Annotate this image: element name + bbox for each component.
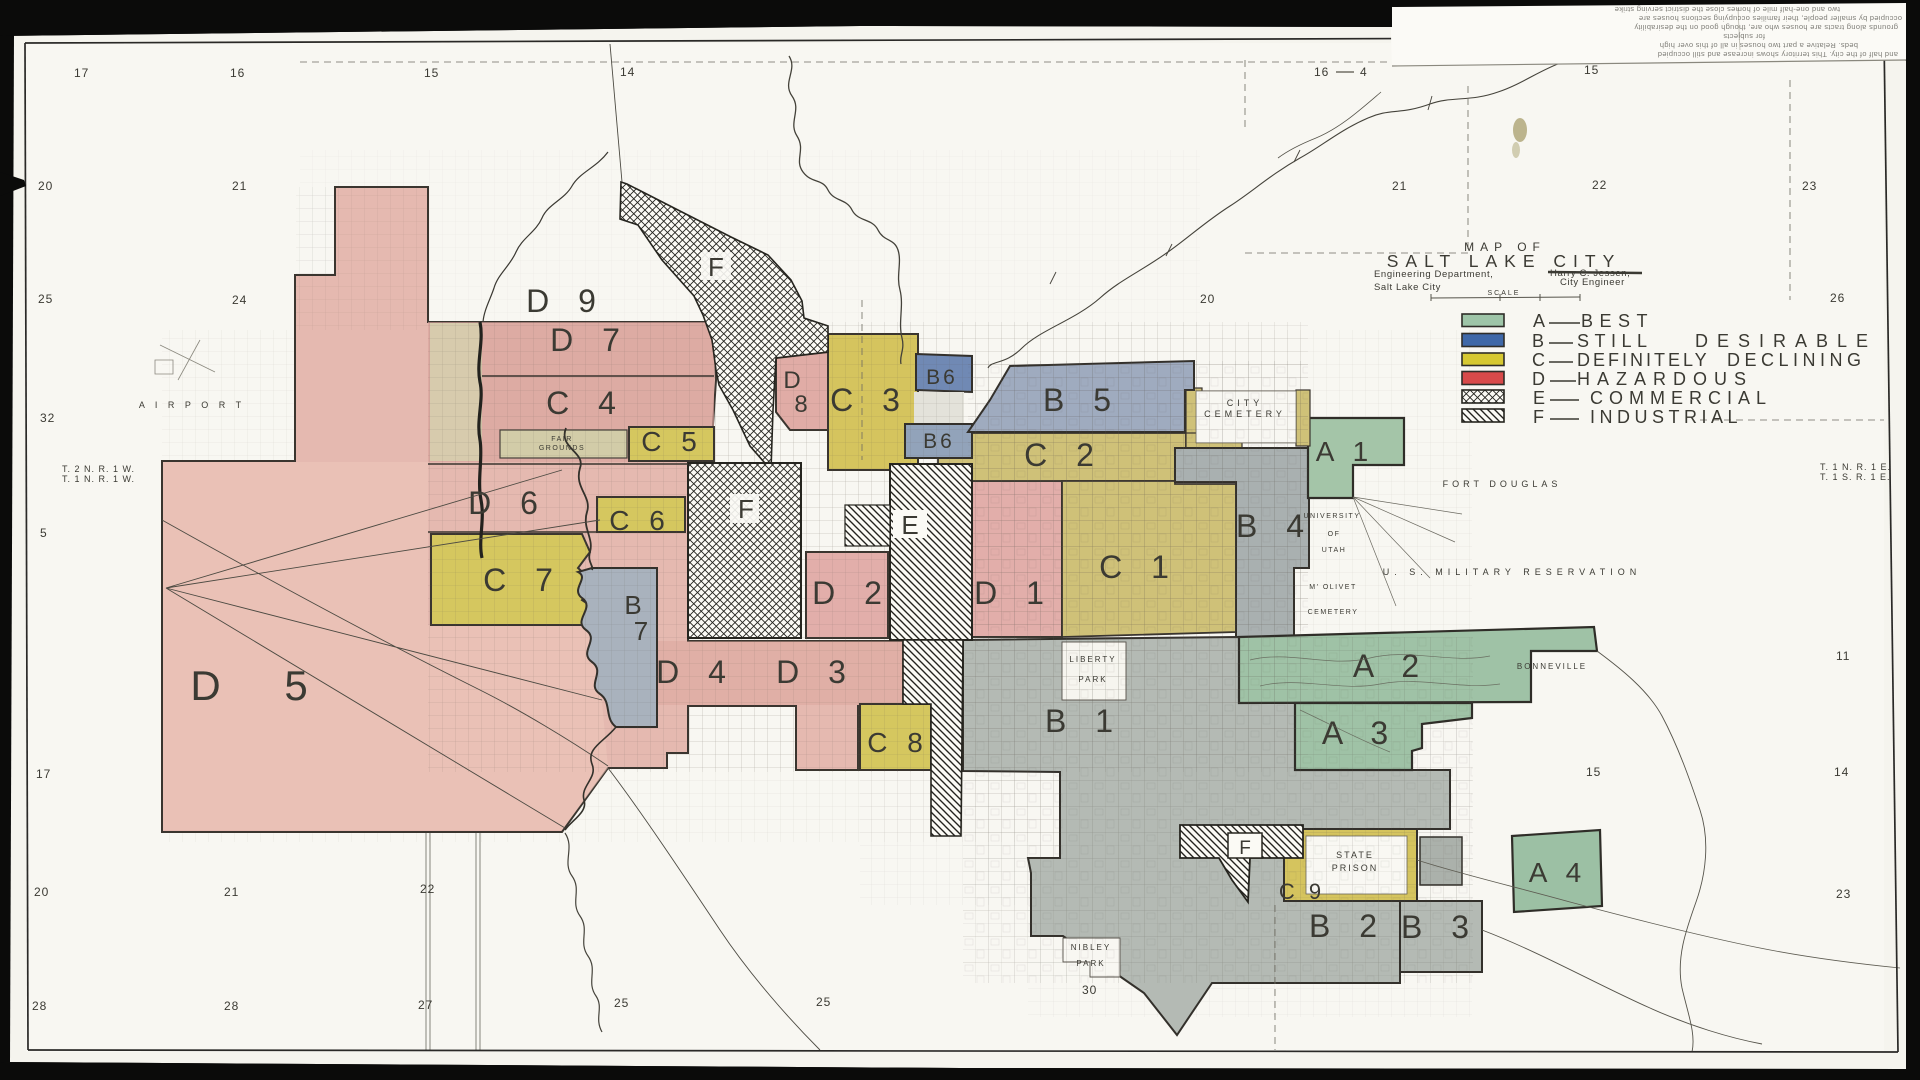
svg-text:30: 30 — [1082, 983, 1097, 997]
svg-text:A I R P O R T: A I R P O R T — [139, 400, 245, 410]
svg-text:D 4: D 4 — [656, 654, 736, 690]
svg-text:FORT DOUGLAS: FORT DOUGLAS — [1443, 479, 1562, 489]
svg-text:FAIR: FAIR — [551, 436, 573, 443]
svg-text:D 5: D 5 — [190, 662, 333, 709]
svg-text:B 1: B 1 — [1045, 703, 1123, 739]
svg-text:A 3: A 3 — [1322, 715, 1398, 751]
svg-text:D 1: D 1 — [974, 575, 1054, 611]
svg-text:27: 27 — [418, 998, 433, 1012]
svg-text:NIBLEY: NIBLEY — [1071, 943, 1111, 952]
svg-text:BONNEVILLE: BONNEVILLE — [1517, 662, 1587, 671]
svg-text:T. 1 N. R. 1 W.: T. 1 N. R. 1 W. — [62, 474, 135, 484]
svg-text:25: 25 — [614, 996, 629, 1010]
svg-text:SCALE: SCALE — [1488, 290, 1521, 297]
svg-text:CITY: CITY — [1227, 398, 1264, 408]
svg-text:24: 24 — [232, 293, 247, 307]
svg-text:14: 14 — [620, 65, 635, 79]
svg-text:26: 26 — [1830, 291, 1845, 305]
svg-text:23: 23 — [1836, 887, 1851, 901]
svg-text:F: F — [708, 252, 724, 282]
svg-text:A 1: A 1 — [1316, 436, 1374, 467]
svg-text:and half of the city. This te: and half of the city. This territory sho… — [1658, 50, 1898, 59]
svg-text:T. 2 N. R. 1 W.: T. 2 N. R. 1 W. — [62, 464, 135, 474]
svg-text:22: 22 — [420, 882, 435, 896]
svg-text:HAZARDOUS: HAZARDOUS — [1577, 369, 1753, 389]
svg-text:B6: B6 — [923, 430, 955, 453]
svg-text:T. 1 S. R. 1 E.: T. 1 S. R. 1 E. — [1820, 472, 1891, 482]
svg-text:28: 28 — [32, 999, 47, 1013]
svg-text:occupied by smaller people, th: occupied by smaller people, their famili… — [1639, 14, 1902, 23]
svg-text:20: 20 — [38, 179, 53, 193]
svg-text:GROUNDS: GROUNDS — [539, 445, 585, 452]
svg-text:M′ OLIVET: M′ OLIVET — [1309, 584, 1357, 591]
svg-text:C 9: C 9 — [1279, 879, 1325, 904]
svg-text:25: 25 — [816, 995, 831, 1009]
svg-text:20: 20 — [1200, 292, 1215, 306]
svg-text:F: F — [1533, 407, 1550, 427]
svg-text:5: 5 — [40, 526, 48, 540]
svg-text:D 6: D 6 — [468, 485, 548, 521]
svg-text:17: 17 — [74, 66, 89, 80]
svg-text:D: D — [1532, 369, 1551, 389]
svg-text:21: 21 — [224, 885, 239, 899]
svg-text:16: 16 — [1314, 65, 1329, 79]
svg-text:PRISON: PRISON — [1332, 863, 1379, 873]
svg-text:City Engineer: City Engineer — [1560, 277, 1625, 288]
svg-text:STATE: STATE — [1336, 850, 1374, 860]
svg-text:OF: OF — [1328, 531, 1341, 538]
svg-text:two and one-half mile of homes: two and one-half mile of homes close the… — [1614, 5, 1840, 14]
svg-text:15: 15 — [1586, 765, 1601, 779]
svg-text:DEFINITELY: DEFINITELY — [1577, 350, 1710, 370]
svg-text:U. S. MILITARY RESERVATION: U. S. MILITARY RESERVATION — [1383, 567, 1642, 577]
svg-text:E: E — [901, 510, 918, 540]
svg-text:B 5: B 5 — [1043, 382, 1121, 418]
svg-text:C 7: C 7 — [483, 562, 563, 598]
svg-text:D 3: D 3 — [776, 654, 856, 690]
svg-text:C 2: C 2 — [1024, 437, 1104, 473]
svg-text:25: 25 — [38, 292, 53, 306]
svg-text:15: 15 — [424, 66, 439, 80]
svg-text:A 2: A 2 — [1353, 648, 1429, 684]
svg-text:A 4: A 4 — [1529, 857, 1587, 888]
svg-text:Salt Lake City: Salt Lake City — [1374, 282, 1441, 293]
svg-text:16: 16 — [230, 66, 245, 80]
svg-text:INDUSTRIAL: INDUSTRIAL — [1590, 407, 1742, 427]
svg-text:D 2: D 2 — [812, 575, 892, 611]
svg-text:14: 14 — [1834, 765, 1849, 779]
svg-text:PARK: PARK — [1078, 675, 1107, 684]
svg-text:D 9: D 9 — [526, 283, 606, 319]
svg-text:22: 22 — [1592, 178, 1607, 192]
svg-text:8: 8 — [794, 391, 807, 418]
svg-text:grounds along tracts are house: grounds along tracts are houses who are,… — [1634, 23, 1898, 32]
svg-text:A: A — [1533, 311, 1551, 331]
svg-text:11: 11 — [1836, 649, 1850, 663]
svg-text:B 3: B 3 — [1401, 909, 1479, 945]
svg-text:B 4: B 4 — [1236, 508, 1314, 544]
svg-text:C 8: C 8 — [867, 727, 929, 758]
svg-text:D: D — [783, 367, 800, 394]
svg-text:F: F — [738, 494, 754, 524]
svg-text:DECLINING: DECLINING — [1727, 350, 1866, 370]
svg-text:23: 23 — [1802, 179, 1817, 193]
svg-text:PARK: PARK — [1076, 959, 1105, 968]
svg-text:UNIVERSITY: UNIVERSITY — [1303, 513, 1360, 520]
svg-text:F: F — [1239, 838, 1251, 859]
svg-text:DESIRABLE: DESIRABLE — [1695, 331, 1877, 351]
svg-text:17: 17 — [36, 767, 51, 781]
svg-text:LIBERTY: LIBERTY — [1069, 655, 1116, 664]
svg-text:C 1: C 1 — [1099, 549, 1179, 585]
svg-text:D 7: D 7 — [550, 322, 630, 358]
svg-text:B: B — [1532, 331, 1550, 351]
svg-text:for subjects: for subjects — [1723, 32, 1765, 41]
svg-text:B 2: B 2 — [1309, 908, 1387, 944]
svg-text:C: C — [1532, 350, 1551, 370]
svg-text:STILL: STILL — [1577, 331, 1653, 351]
svg-text:C 3: C 3 — [830, 382, 910, 418]
svg-text:COMMERCIAL: COMMERCIAL — [1590, 388, 1772, 408]
svg-text:C 6: C 6 — [609, 505, 671, 536]
svg-text:beds. Relative a part two hou: beds. Relative a part two houses in all … — [1660, 41, 1858, 50]
svg-text:Engineering Department,: Engineering Department, — [1374, 269, 1493, 280]
svg-text:28: 28 — [224, 999, 239, 1013]
svg-text:BEST: BEST — [1581, 311, 1654, 331]
svg-text:20: 20 — [34, 885, 49, 899]
svg-text:7: 7 — [634, 616, 648, 646]
svg-text:E: E — [1533, 388, 1551, 408]
svg-text:21: 21 — [232, 179, 247, 193]
svg-text:CEMETERY: CEMETERY — [1204, 409, 1286, 419]
svg-text:32: 32 — [40, 411, 55, 425]
svg-text:UTAH: UTAH — [1322, 547, 1347, 554]
svg-text:CEMETERY: CEMETERY — [1308, 609, 1359, 616]
svg-text:15: 15 — [1584, 63, 1599, 77]
svg-text:C 4: C 4 — [546, 385, 626, 421]
svg-text:C 5: C 5 — [641, 426, 703, 457]
svg-text:B6: B6 — [926, 366, 958, 389]
svg-text:T. 1 N. R. 1 E.: T. 1 N. R. 1 E. — [1820, 462, 1891, 472]
svg-text:21: 21 — [1392, 179, 1407, 193]
svg-text:4: 4 — [1360, 65, 1368, 79]
